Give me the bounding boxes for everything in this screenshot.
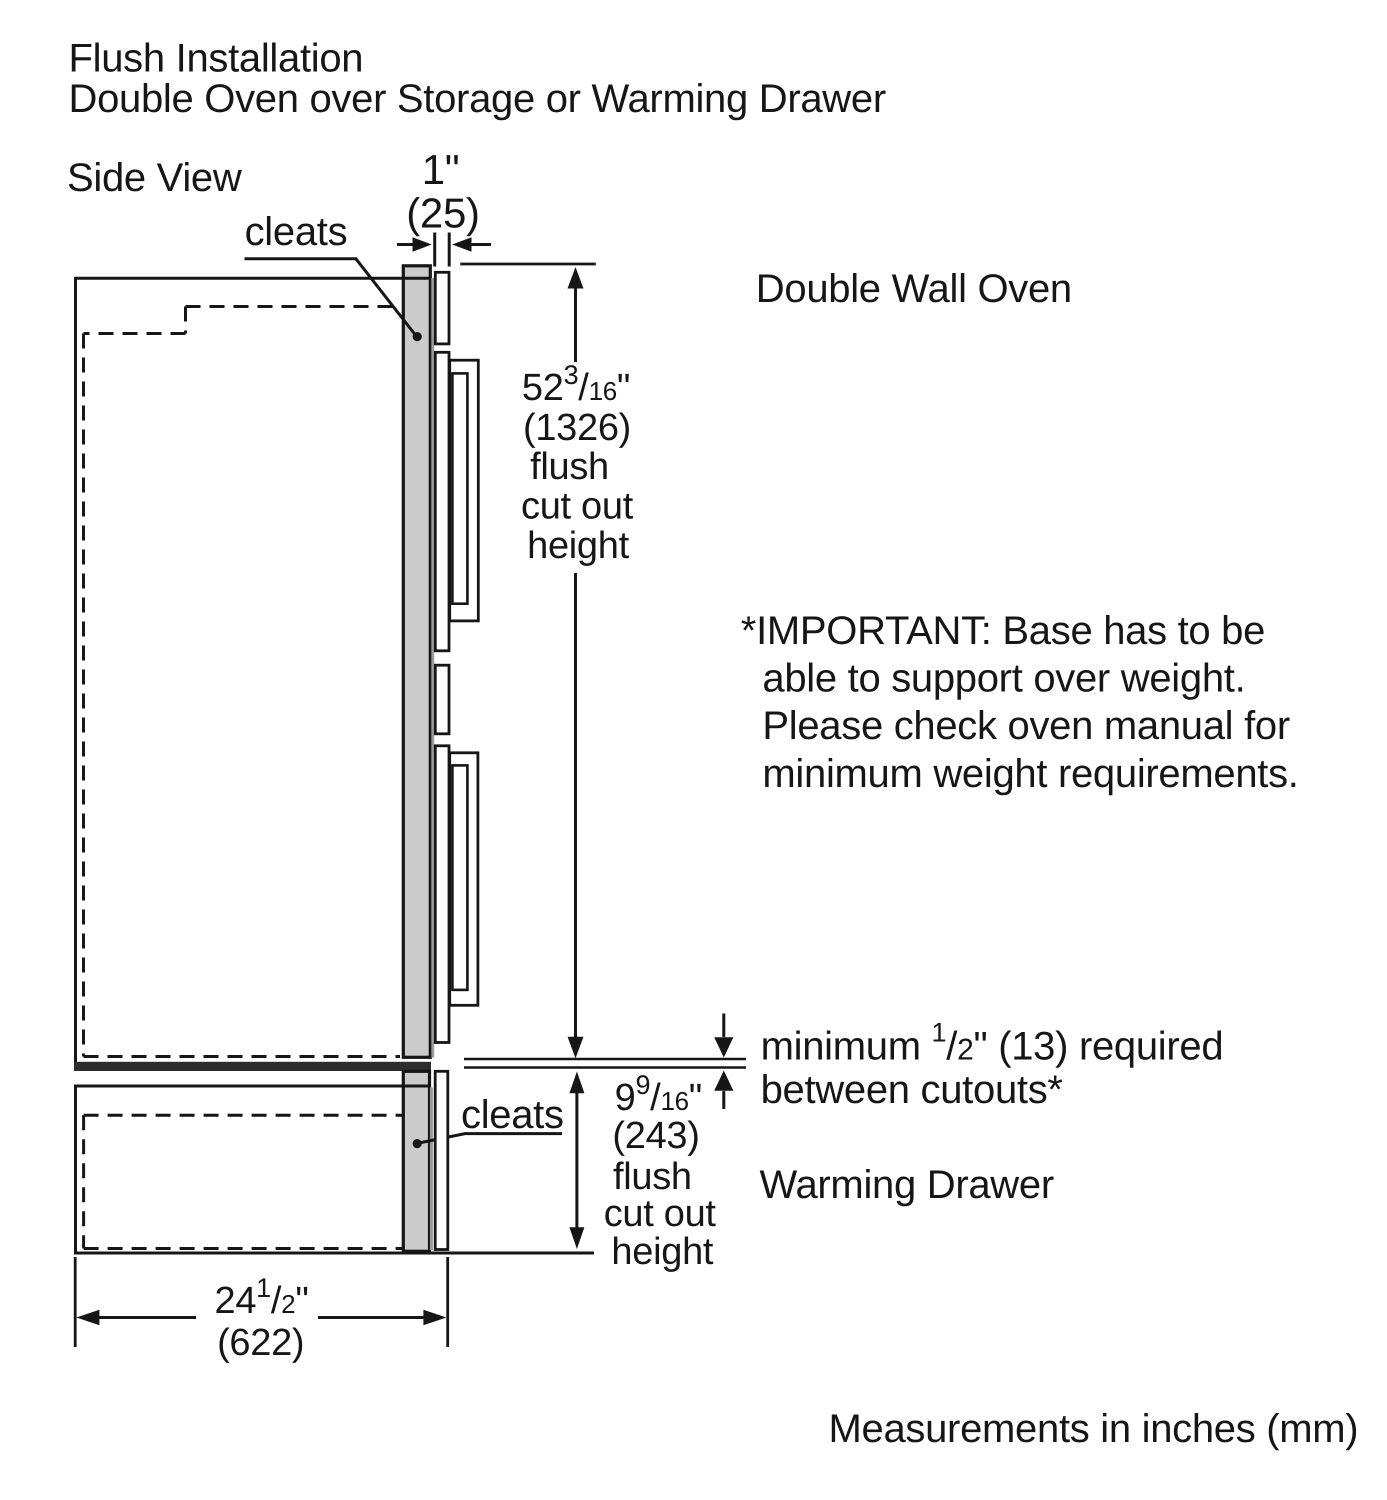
svg-text:(1326): (1326) (523, 407, 631, 449)
svg-text:Double Oven over Storage or Wa: Double Oven over Storage or Warming Draw… (69, 77, 886, 121)
svg-text:minimum 1/2" (13) required: minimum 1/2" (13) required (761, 1018, 1224, 1069)
svg-text:Warming Drawer: Warming Drawer (760, 1163, 1054, 1207)
svg-text:cleats: cleats (461, 1093, 564, 1137)
svg-text:cut out: cut out (521, 485, 634, 527)
svg-text:flush: flush (530, 446, 609, 488)
svg-text:height: height (527, 525, 629, 567)
svg-text:flush: flush (613, 1156, 692, 1198)
svg-text:cleats: cleats (245, 210, 348, 254)
svg-text:(25): (25) (406, 190, 480, 237)
svg-text:minimum weight requirements.: minimum weight requirements. (762, 752, 1298, 796)
svg-text:99/16": 99/16" (615, 1070, 702, 1119)
svg-text:1": 1" (422, 146, 460, 193)
svg-text:Flush Installation: Flush Installation (69, 37, 364, 81)
svg-text:(622): (622) (217, 1322, 304, 1364)
svg-text:Measurements in inches (mm): Measurements in inches (mm) (829, 1407, 1359, 1451)
svg-text:cut out: cut out (604, 1193, 717, 1235)
svg-text:Double Wall Oven: Double Wall Oven (756, 267, 1072, 311)
svg-text:Side View: Side View (67, 156, 242, 200)
svg-text:*IMPORTANT: Base has to be: *IMPORTANT: Base has to be (741, 609, 1265, 653)
svg-text:Please check oven manual for: Please check oven manual for (762, 704, 1289, 748)
svg-text:able to support over weight.: able to support over weight. (762, 657, 1245, 701)
svg-text:(243): (243) (612, 1115, 699, 1157)
svg-text:height: height (611, 1231, 713, 1273)
svg-text:between cutouts*: between cutouts* (761, 1068, 1063, 1112)
